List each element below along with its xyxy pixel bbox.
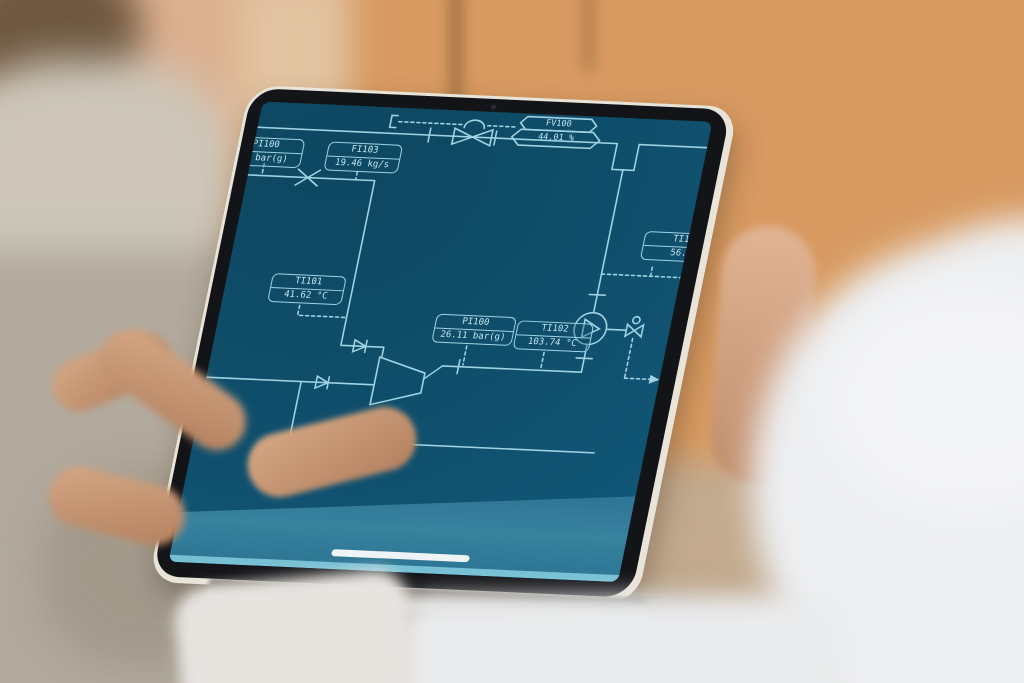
hand-valve-icon <box>625 316 645 337</box>
control-valve-icon <box>452 119 495 146</box>
tag-value: 26.11 bar(g) <box>432 329 513 345</box>
front-camera-icon <box>490 104 497 110</box>
tag-value: 103.74 °C <box>514 335 591 351</box>
flow-arrow-icon <box>649 375 661 384</box>
instrument-tag-pi100[interactable]: PI100 26.11 bar(g) <box>431 314 517 346</box>
signal-break-icon <box>390 115 398 127</box>
instrument-tag-ti-right[interactable]: TI1 56. <box>640 231 713 263</box>
tag-value: 19.46 kg/s <box>325 156 400 172</box>
tag-value: 41.62 °C <box>268 288 343 304</box>
drain-line <box>625 338 658 379</box>
background-panel-seam <box>584 0 593 70</box>
instrument-tag-ti102[interactable]: TI102 103.74 °C <box>513 320 595 352</box>
compressor-icon <box>370 357 428 407</box>
signal-line <box>399 122 518 127</box>
instrument-tag-ti101[interactable]: TI101 41.62 °C <box>267 273 347 305</box>
photo-scene: PI100 50 bar(g) FI103 19.46 kg/s FV100 4… <box>0 0 1024 683</box>
tag-value: 56. <box>641 246 712 262</box>
pipe-left-line <box>212 175 418 357</box>
pipe-outlet <box>424 365 582 386</box>
instrument-tag-fi103[interactable]: FI103 19.46 kg/s <box>323 142 403 174</box>
shirt-bottom <box>396 596 846 683</box>
pipe-right-branch <box>606 329 626 330</box>
pipe-lower-inlet <box>206 377 374 385</box>
tag-value: 50 bar(g) <box>225 151 302 167</box>
